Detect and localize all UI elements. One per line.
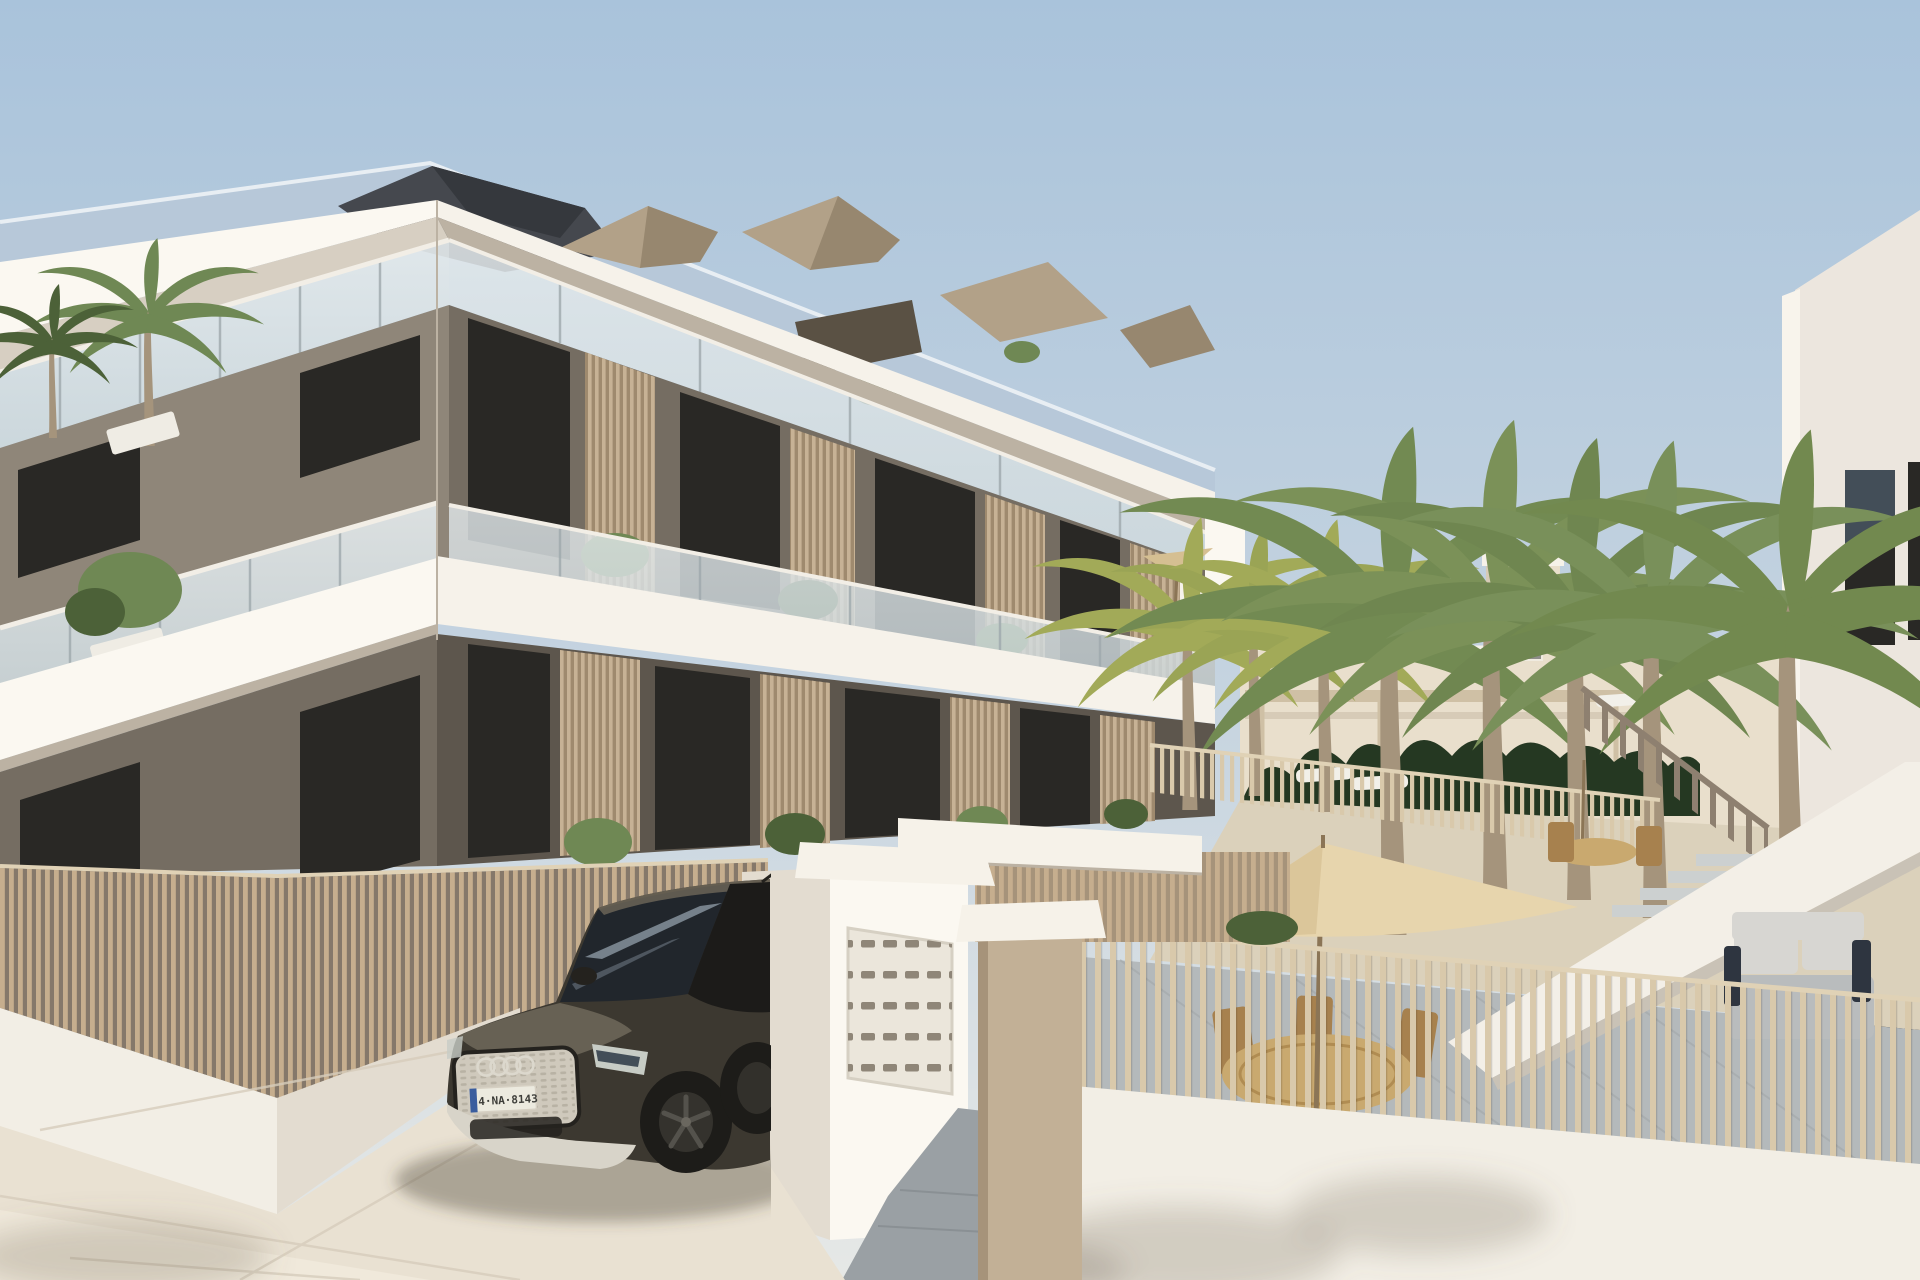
mailbox-panel [848, 928, 952, 1094]
gate-shrub [1226, 911, 1298, 945]
car-front-wheel [640, 1071, 732, 1173]
license-plate: 4·NA·8143 [469, 1085, 538, 1113]
pillar-cap [956, 900, 1106, 942]
car-mirror [571, 967, 597, 985]
render-canvas: 4·NA·8143 [0, 0, 1920, 1280]
